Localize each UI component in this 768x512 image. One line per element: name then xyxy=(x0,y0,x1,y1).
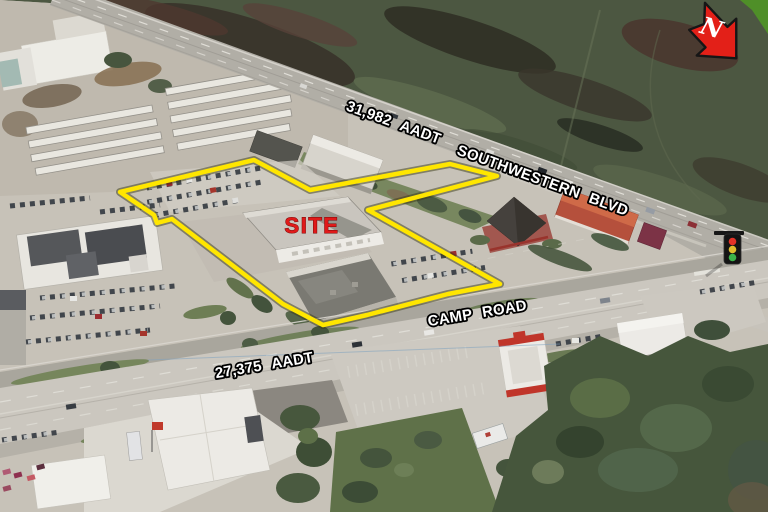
aerial-photo: N 31,982 AADT SOUTHWESTERN BLVD CAMP ROA… xyxy=(0,0,768,512)
site-label: SITE xyxy=(285,213,340,238)
red-flag xyxy=(152,422,163,430)
box-truck xyxy=(127,431,143,460)
aerial-site-map: N 31,982 AADT SOUTHWESTERN BLVD CAMP ROA… xyxy=(0,0,768,512)
